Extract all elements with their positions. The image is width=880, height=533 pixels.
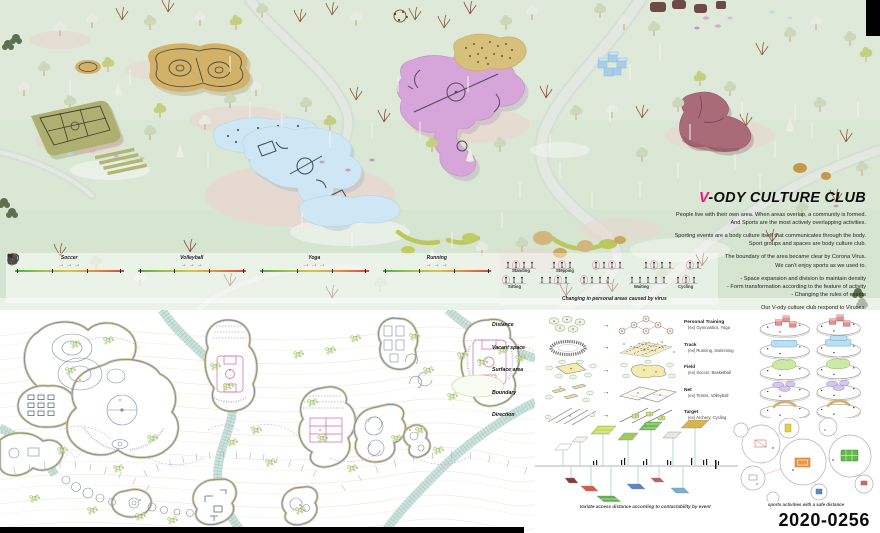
iso-icon	[614, 315, 678, 335]
sport-group-volleyball: Volleyball → → →	[131, 255, 254, 301]
safe-distance-bubbles	[733, 418, 878, 502]
person-count-icon	[6, 253, 14, 259]
posture-label: Standing	[512, 268, 530, 273]
arrow-icon: →	[65, 262, 73, 268]
arrow-icon: →	[441, 262, 449, 268]
posture-figures	[500, 255, 716, 295]
arrow-icon: →	[302, 262, 310, 268]
intro-paragraph: People live with their own area. When ar…	[516, 211, 866, 227]
sport-group-soccer: Soccer → → →	[8, 255, 131, 301]
bubbles-caption: sports activities with a safe distance	[735, 502, 877, 507]
model-render-section: V-ODY CULTURE CLUB People live with thei…	[0, 0, 880, 310]
arrow-icon: →	[598, 389, 614, 396]
pavilion-platters	[752, 312, 878, 418]
body-culture-paragraph: Sporting events are a body culture itsel…	[516, 232, 866, 248]
category-example: (ex) Running, Swimming	[684, 348, 734, 353]
morphology-row: Vacant space → Track(ex) Running, Swimmi…	[492, 337, 762, 360]
sport-morphing-strip: Soccer → → → Volleyball →	[6, 253, 500, 303]
cluster-icon	[542, 360, 598, 380]
posture-label: Cycling	[678, 284, 693, 289]
bottom-mask	[0, 527, 524, 533]
morph-label: Surface area	[492, 367, 542, 373]
drawing-sheet-section: Distance → Personal	[0, 310, 880, 533]
iso-icon	[614, 338, 678, 358]
morphology-legend: Distance → Personal	[492, 314, 762, 427]
arrow-icon: →	[433, 262, 441, 268]
morph-label: Vacant space	[492, 345, 542, 351]
posture-caption: Changing in personal areas caused by vir…	[562, 296, 712, 302]
category-example: (ex) Soccer, Basketball	[684, 370, 731, 375]
timeline-caption: Variate access distance according to con…	[545, 504, 745, 509]
entry-code: 2020-0256	[779, 510, 870, 531]
arrow-icon: →	[73, 262, 81, 268]
title-rest: -ODY CULTURE CLUB	[708, 190, 866, 206]
arrow-icon: →	[598, 322, 614, 329]
corner-mask	[866, 0, 880, 36]
arrow-icon: →	[188, 262, 196, 268]
arrow-icon: →	[598, 412, 614, 419]
board-title: V-ODY CULTURE CLUB	[516, 190, 866, 206]
category-example: (ex) Tennis, Volleyball	[684, 393, 728, 398]
morphology-row: Distance → Personal	[492, 314, 762, 337]
iso-icon	[614, 383, 678, 403]
title-v: V	[699, 190, 708, 206]
posture-label: Sitting	[508, 284, 521, 289]
access-distance-diagram	[533, 420, 748, 504]
cluster-icon	[542, 383, 598, 403]
morphology-row: Surface area → Field(	[492, 359, 762, 382]
density-gradient-bar	[260, 270, 369, 273]
category-example: (ex) Gymnastics, Yoga	[684, 325, 730, 330]
density-gradient-bar	[138, 270, 247, 273]
posture-label: Waiting	[634, 284, 649, 289]
density-gradient-bar	[15, 270, 124, 273]
master-plan-drawing	[0, 310, 535, 533]
posture-label: Stepping	[556, 268, 574, 273]
arrow-icon: →	[598, 367, 614, 374]
sport-group-running: Running → → →	[376, 255, 499, 301]
density-gradient-bar	[383, 270, 492, 273]
competition-board: V-ODY CULTURE CLUB People live with thei…	[0, 0, 880, 533]
iso-icon	[614, 360, 678, 380]
arrow-icon: →	[180, 262, 188, 268]
morphology-row: Boundary →	[492, 382, 762, 405]
arrow-icon: →	[318, 262, 326, 268]
personal-area-panel: Standing Stepping Sitting Waiting Cyclin…	[500, 253, 718, 305]
cluster-icon	[542, 315, 598, 335]
arrow-icon: →	[57, 262, 65, 268]
morph-label: Distance	[492, 322, 542, 328]
cluster-icon	[542, 338, 598, 358]
morph-label: Boundary	[492, 390, 542, 396]
arrow-icon: →	[310, 262, 318, 268]
sport-group-yoga: Yoga → → →	[253, 255, 376, 301]
arrow-icon: →	[425, 262, 433, 268]
arrow-icon: →	[598, 344, 614, 351]
arrow-icon: →	[196, 262, 204, 268]
morph-label: Direction	[492, 412, 542, 418]
